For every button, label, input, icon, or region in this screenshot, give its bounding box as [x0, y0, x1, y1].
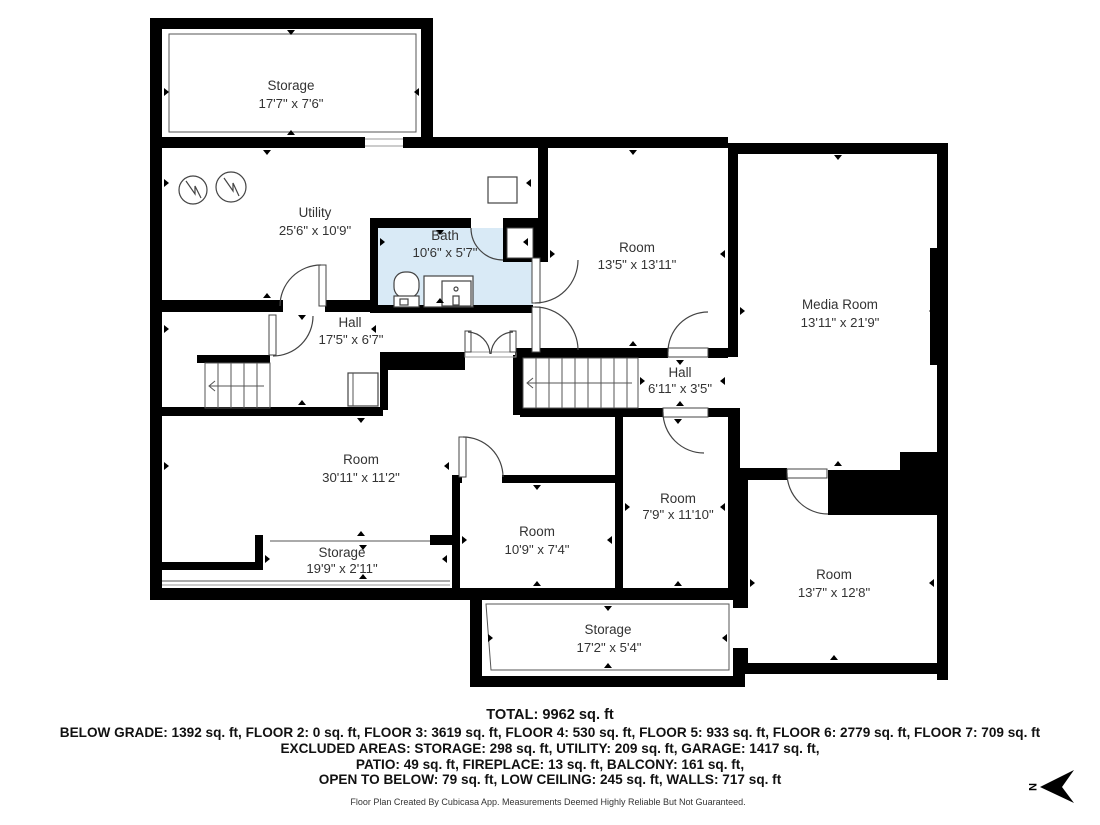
wall-opening: [365, 137, 403, 148]
room-dims: 30'11" x 11'2": [322, 470, 400, 485]
staircase-right: [523, 358, 638, 408]
summary-open-below: OPEN TO BELOW: 79 sq. ft, LOW CEILING: 2…: [319, 772, 782, 787]
room-dims: 17'7" x 7'6": [259, 96, 324, 111]
summary-patio: PATIO: 49 sq. ft, FIREPLACE: 13 sq. ft, …: [356, 757, 744, 772]
utility-box-icon: [488, 177, 517, 203]
room-dims: 7'9" x 11'10": [642, 507, 714, 522]
room-label: Storage: [268, 78, 315, 93]
staircase-left: [205, 363, 270, 408]
room-label: Storage: [585, 622, 632, 637]
summary-excluded: EXCLUDED AREAS: STORAGE: 298 sq. ft, UTI…: [280, 741, 819, 756]
door-hall-to-room79: [663, 408, 708, 453]
room-label: Hall: [668, 365, 691, 380]
room-dims: 13'5" x 13'11": [598, 257, 677, 272]
room-dims: 6'11" x 3'5": [648, 381, 712, 396]
room-label: Room: [816, 567, 852, 582]
double-door-vestibule: [465, 331, 516, 357]
room-dims: 13'7" x 12'8": [798, 585, 871, 600]
door-utility-hall: [280, 265, 326, 306]
door-room109: [459, 437, 503, 477]
room-label: Room: [343, 452, 379, 467]
room-label: Hall: [338, 315, 361, 330]
fixtures: [179, 172, 517, 406]
room-label: Utility: [299, 205, 332, 220]
door-media-to-room137: [787, 469, 828, 514]
room-label: Room: [660, 491, 696, 506]
hall-cabinet-icon: [348, 373, 378, 406]
door-room-to-hall: [668, 312, 708, 357]
north-compass: N: [1026, 770, 1074, 803]
summary-floors: BELOW GRADE: 1392 sq. ft, FLOOR 2: 0 sq.…: [60, 725, 1041, 740]
area-summary: TOTAL: 9962 sq. ft BELOW GRADE: 1392 sq.…: [60, 707, 1041, 787]
room-dims: 19'9" x 2'11": [306, 561, 378, 576]
sink-vanity-icon: [424, 276, 473, 307]
summary-total: TOTAL: 9962 sq. ft: [486, 707, 614, 723]
north-label: N: [1026, 783, 1038, 791]
floor-plan-page: Storage 17'7" x 7'6" Utility 25'6" x 10'…: [0, 0, 1100, 825]
door-room-lower: [532, 307, 578, 352]
room-label: Bath: [431, 228, 459, 243]
room-dims: 17'2" x 5'4": [577, 640, 642, 655]
door-hall-left: [269, 315, 313, 356]
room-label: Room: [619, 240, 655, 255]
door-room-upper: [532, 258, 578, 303]
room-label: Media Room: [802, 297, 878, 312]
room-dims: 10'6" x 5'7": [413, 245, 478, 260]
room-labels: Storage 17'7" x 7'6" Utility 25'6" x 10'…: [259, 78, 880, 655]
floor-plan-canvas: Storage 17'7" x 7'6" Utility 25'6" x 10'…: [0, 0, 1100, 825]
room-dims: 10'9" x 7'4": [505, 542, 570, 557]
water-heater-icon: [216, 172, 246, 202]
north-arrow-icon: [1040, 770, 1074, 803]
water-heater-icon: [179, 176, 207, 204]
footer-disclaimer: Floor Plan Created By Cubicasa App. Meas…: [350, 797, 745, 807]
room-dims: 17'5" x 6'7": [319, 332, 384, 347]
room-dims: 25'6" x 10'9": [279, 223, 352, 238]
room-label: Room: [519, 524, 555, 539]
toilet-icon: [394, 272, 419, 307]
room-label: Storage: [319, 545, 366, 560]
room-dims: 13'11" x 21'9": [801, 315, 880, 330]
